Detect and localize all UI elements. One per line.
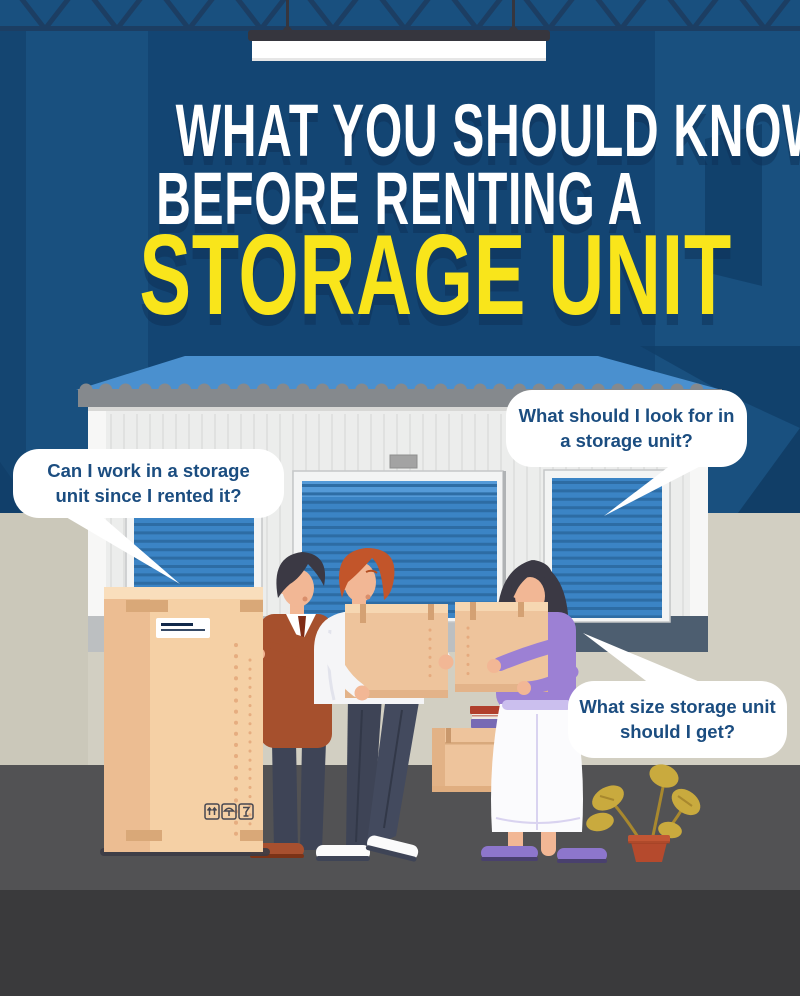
- infographic-poster: WHAT YOU SHOULD KNOW BEFORE RENTING A ST…: [0, 0, 800, 996]
- speech-bubble-top-right-line-2: a storage unit?: [560, 429, 693, 454]
- speech-bubble-top-right-line-1: What should I look for in: [519, 404, 735, 429]
- speech-bubble-top-right: What should I look for in a storage unit…: [506, 390, 747, 467]
- roll-up-door-middle: [293, 471, 506, 622]
- vent: [390, 455, 417, 468]
- floor-front-band: [0, 890, 800, 996]
- wall-door-silhouette: [705, 124, 762, 286]
- speech-bubble-left-line-2: unit since I rented it?: [55, 484, 241, 509]
- speech-bubble-left-line-1: Can I work in a storage: [47, 459, 250, 484]
- tall-moving-box: [100, 587, 270, 856]
- speech-bubble-bottom-right-line-2: should I get?: [620, 720, 735, 745]
- speech-bubble-bottom-right: What size storage unit should I get?: [568, 681, 787, 758]
- speech-bubble-bottom-right-line-1: What size storage unit: [579, 695, 775, 720]
- shipping-label: [156, 618, 210, 638]
- speech-bubble-left: Can I work in a storage unit since I ren…: [13, 449, 284, 518]
